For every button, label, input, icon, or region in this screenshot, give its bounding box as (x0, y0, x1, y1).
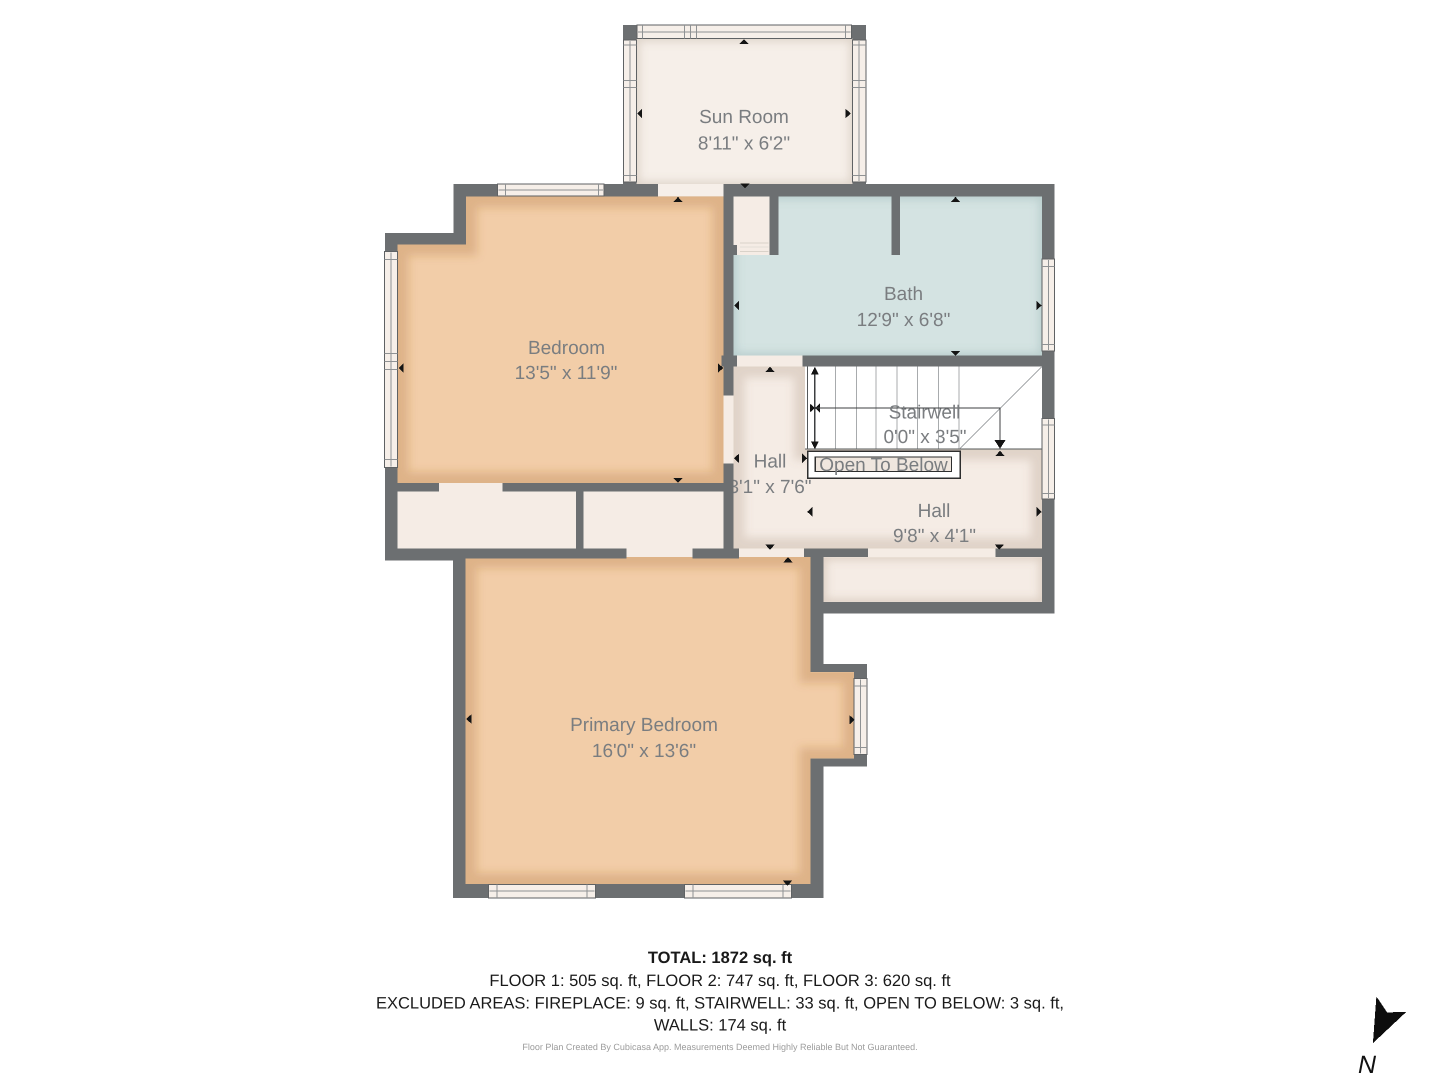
svg-text:EXCLUDED AREAS: FIREPLACE: 9 s: EXCLUDED AREAS: FIREPLACE: 9 sq. ft, STA… (376, 995, 1064, 1013)
svg-text:Sun Room: Sun Room (699, 107, 789, 128)
svg-text:Bedroom: Bedroom (528, 338, 605, 359)
svg-text:WALLS: 174 sq. ft: WALLS: 174 sq. ft (654, 1017, 787, 1035)
svg-text:Hall: Hall (918, 501, 951, 522)
svg-text:Hall: Hall (754, 452, 787, 473)
svg-text:0'0" x 3'5": 0'0" x 3'5" (883, 427, 966, 448)
svg-text:Bath: Bath (884, 284, 923, 305)
svg-text:FLOOR 1: 505 sq. ft, FLOOR 2:: FLOOR 1: 505 sq. ft, FLOOR 2: 747 sq. ft… (489, 972, 951, 990)
svg-text:16'0" x 13'6": 16'0" x 13'6" (592, 741, 696, 762)
svg-text:9'8" x 4'1": 9'8" x 4'1" (893, 526, 976, 547)
svg-text:N: N (1358, 1051, 1377, 1079)
svg-text:13'5" x 11'9": 13'5" x 11'9" (515, 363, 618, 384)
svg-text:Open To Below: Open To Below (819, 455, 948, 476)
svg-text:Primary Bedroom: Primary Bedroom (570, 715, 718, 736)
svg-text:TOTAL: 1872 sq. ft: TOTAL: 1872 sq. ft (648, 949, 793, 967)
svg-text:Floor Plan Created By Cubicasa: Floor Plan Created By Cubicasa App. Meas… (522, 1042, 917, 1052)
svg-text:8'11" x 6'2": 8'11" x 6'2" (698, 134, 790, 155)
svg-text:3'1" x 7'6": 3'1" x 7'6" (728, 477, 811, 498)
svg-text:12'9" x 6'8": 12'9" x 6'8" (857, 310, 951, 331)
svg-text:Stairwell: Stairwell (889, 403, 961, 424)
